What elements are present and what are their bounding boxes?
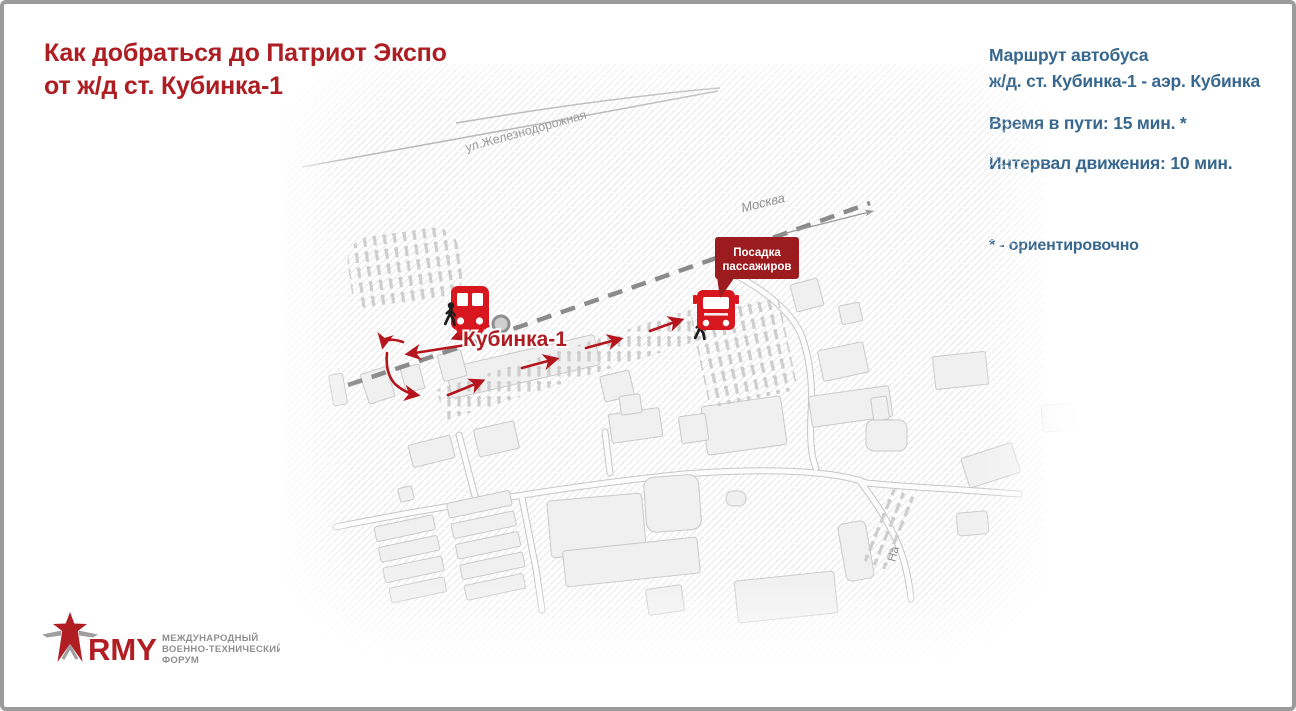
station-label: Кубинка-1 xyxy=(463,328,567,351)
army-logo: RMY МЕЖДУНАРОДНЫЙ ВОЕННО-ТЕХНИЧЕСКИЙ ФОР… xyxy=(40,607,280,677)
logo-caption-line3: ФОРУМ xyxy=(162,655,199,666)
logo-caption: МЕЖДУНАРОДНЫЙ ВОЕННО-ТЕХНИЧЕСКИЙ ФОРУМ xyxy=(162,632,280,666)
logo-brand-text: RMY xyxy=(88,632,157,667)
callout-line2: пассажиров xyxy=(722,261,791,273)
slide-frame: Как добраться до Патриот Экспо от ж/д ст… xyxy=(0,0,1296,711)
logo-caption-line2: ВОЕННО-ТЕХНИЧЕСКИЙ xyxy=(162,643,280,655)
logo-caption-line1: МЕЖДУНАРОДНЫЙ xyxy=(162,632,258,644)
bus-icon xyxy=(693,290,739,330)
route-map: ул.Железнодорожная Москва На xyxy=(4,4,1296,711)
callout-line1: Посадка xyxy=(733,247,781,259)
